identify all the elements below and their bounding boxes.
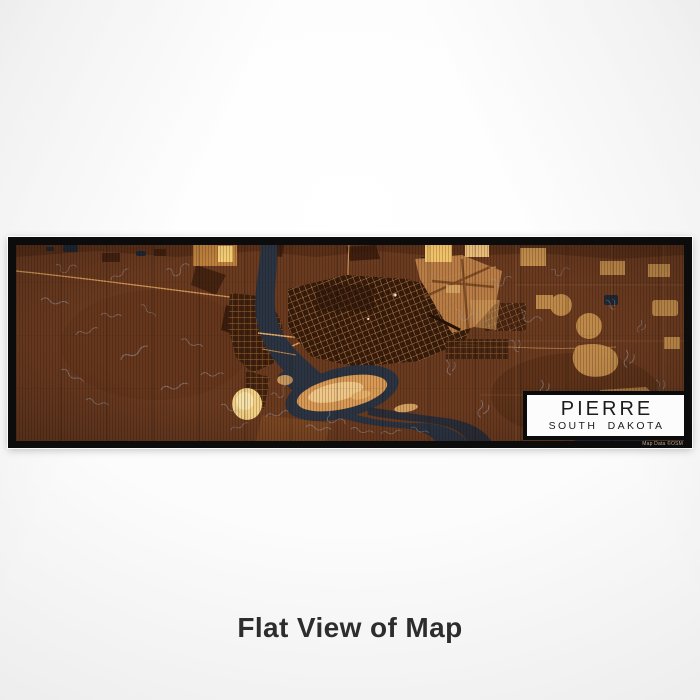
map-title: PIERRE xyxy=(558,399,653,419)
map-attribution: Map Data ©OSM xyxy=(642,441,683,448)
map-title-card: PIERRE SOUTH DAKOTA xyxy=(523,391,688,440)
map-print[interactable]: PIERRE SOUTH DAKOTA Map Data ©OSM xyxy=(8,237,692,448)
map-subtitle: SOUTH DAKOTA xyxy=(547,421,665,432)
view-caption: Flat View of Map xyxy=(0,612,700,644)
